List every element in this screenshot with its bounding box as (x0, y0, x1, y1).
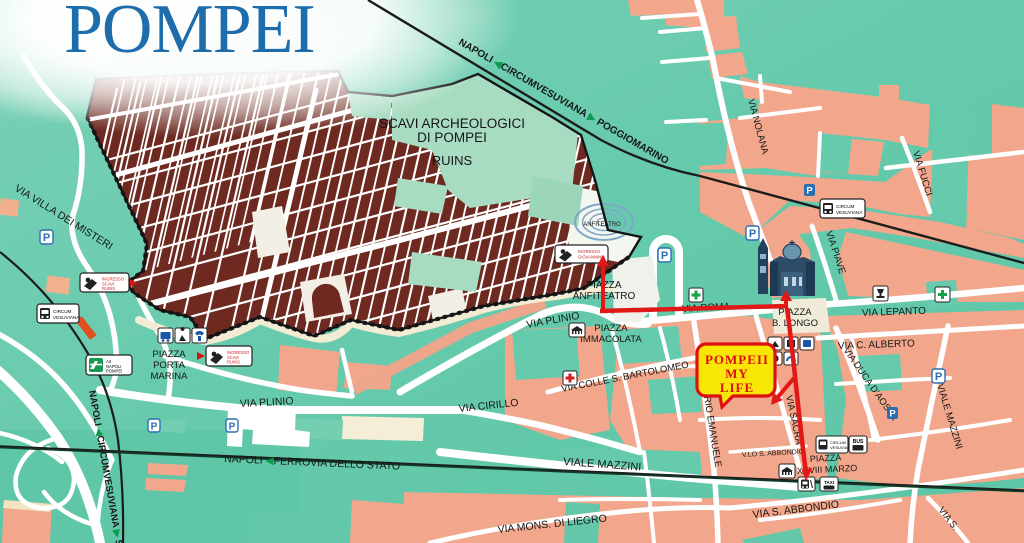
svg-text:VESUVIANA: VESUVIANA (53, 315, 80, 320)
svg-text:POMPEI: POMPEI (106, 369, 122, 374)
svg-text:RUINS: RUINS (432, 153, 473, 168)
svg-text:RUINS: RUINS (102, 286, 115, 291)
svg-text:PIAZZA: PIAZZA (778, 307, 812, 318)
svg-text:SCAVI ARCHEOLOGICI: SCAVI ARCHEOLOGICI (379, 116, 525, 131)
svg-text:PIAZZA: PIAZZA (810, 452, 842, 464)
svg-text:VESUVIANA: VESUVIANA (836, 210, 863, 215)
svg-text:INGRESSO: INGRESSO (578, 249, 601, 254)
svg-text:PIAZZA: PIAZZA (594, 323, 628, 334)
svg-text:MY: MY (725, 366, 749, 381)
svg-text:IMMACOLATA: IMMACOLATA (580, 334, 642, 345)
svg-text:CIRCUM: CIRCUM (53, 309, 72, 314)
svg-text:DI POMPEI: DI POMPEI (417, 130, 487, 145)
svg-text:P: P (889, 409, 896, 420)
svg-text:B. LONGO: B. LONGO (772, 318, 818, 329)
svg-text:P: P (806, 186, 813, 197)
svg-text:PIAZZA: PIAZZA (152, 349, 186, 360)
svg-text:RUINS: RUINS (227, 360, 240, 365)
svg-text:P: P (749, 228, 756, 240)
svg-text:POMPEII: POMPEII (705, 352, 769, 367)
svg-text:VIA LEPANTO: VIA LEPANTO (862, 306, 927, 319)
svg-text:POMPEI: POMPEI (64, 0, 315, 68)
svg-text:P: P (151, 422, 158, 433)
svg-text:PORTA: PORTA (153, 360, 186, 371)
svg-text:BUS: BUS (853, 439, 864, 445)
svg-text:ANFITEATRO: ANFITEATRO (583, 222, 621, 228)
svg-text:P: P (229, 422, 236, 433)
svg-text:TAXI: TAXI (824, 480, 834, 485)
svg-text:MARINA: MARINA (151, 371, 189, 382)
svg-text:P: P (935, 371, 942, 383)
svg-text:CIRCUM: CIRCUM (836, 204, 855, 209)
svg-text:LIFE: LIFE (720, 380, 754, 395)
svg-text:P: P (661, 250, 668, 262)
svg-text:P: P (43, 232, 50, 244)
